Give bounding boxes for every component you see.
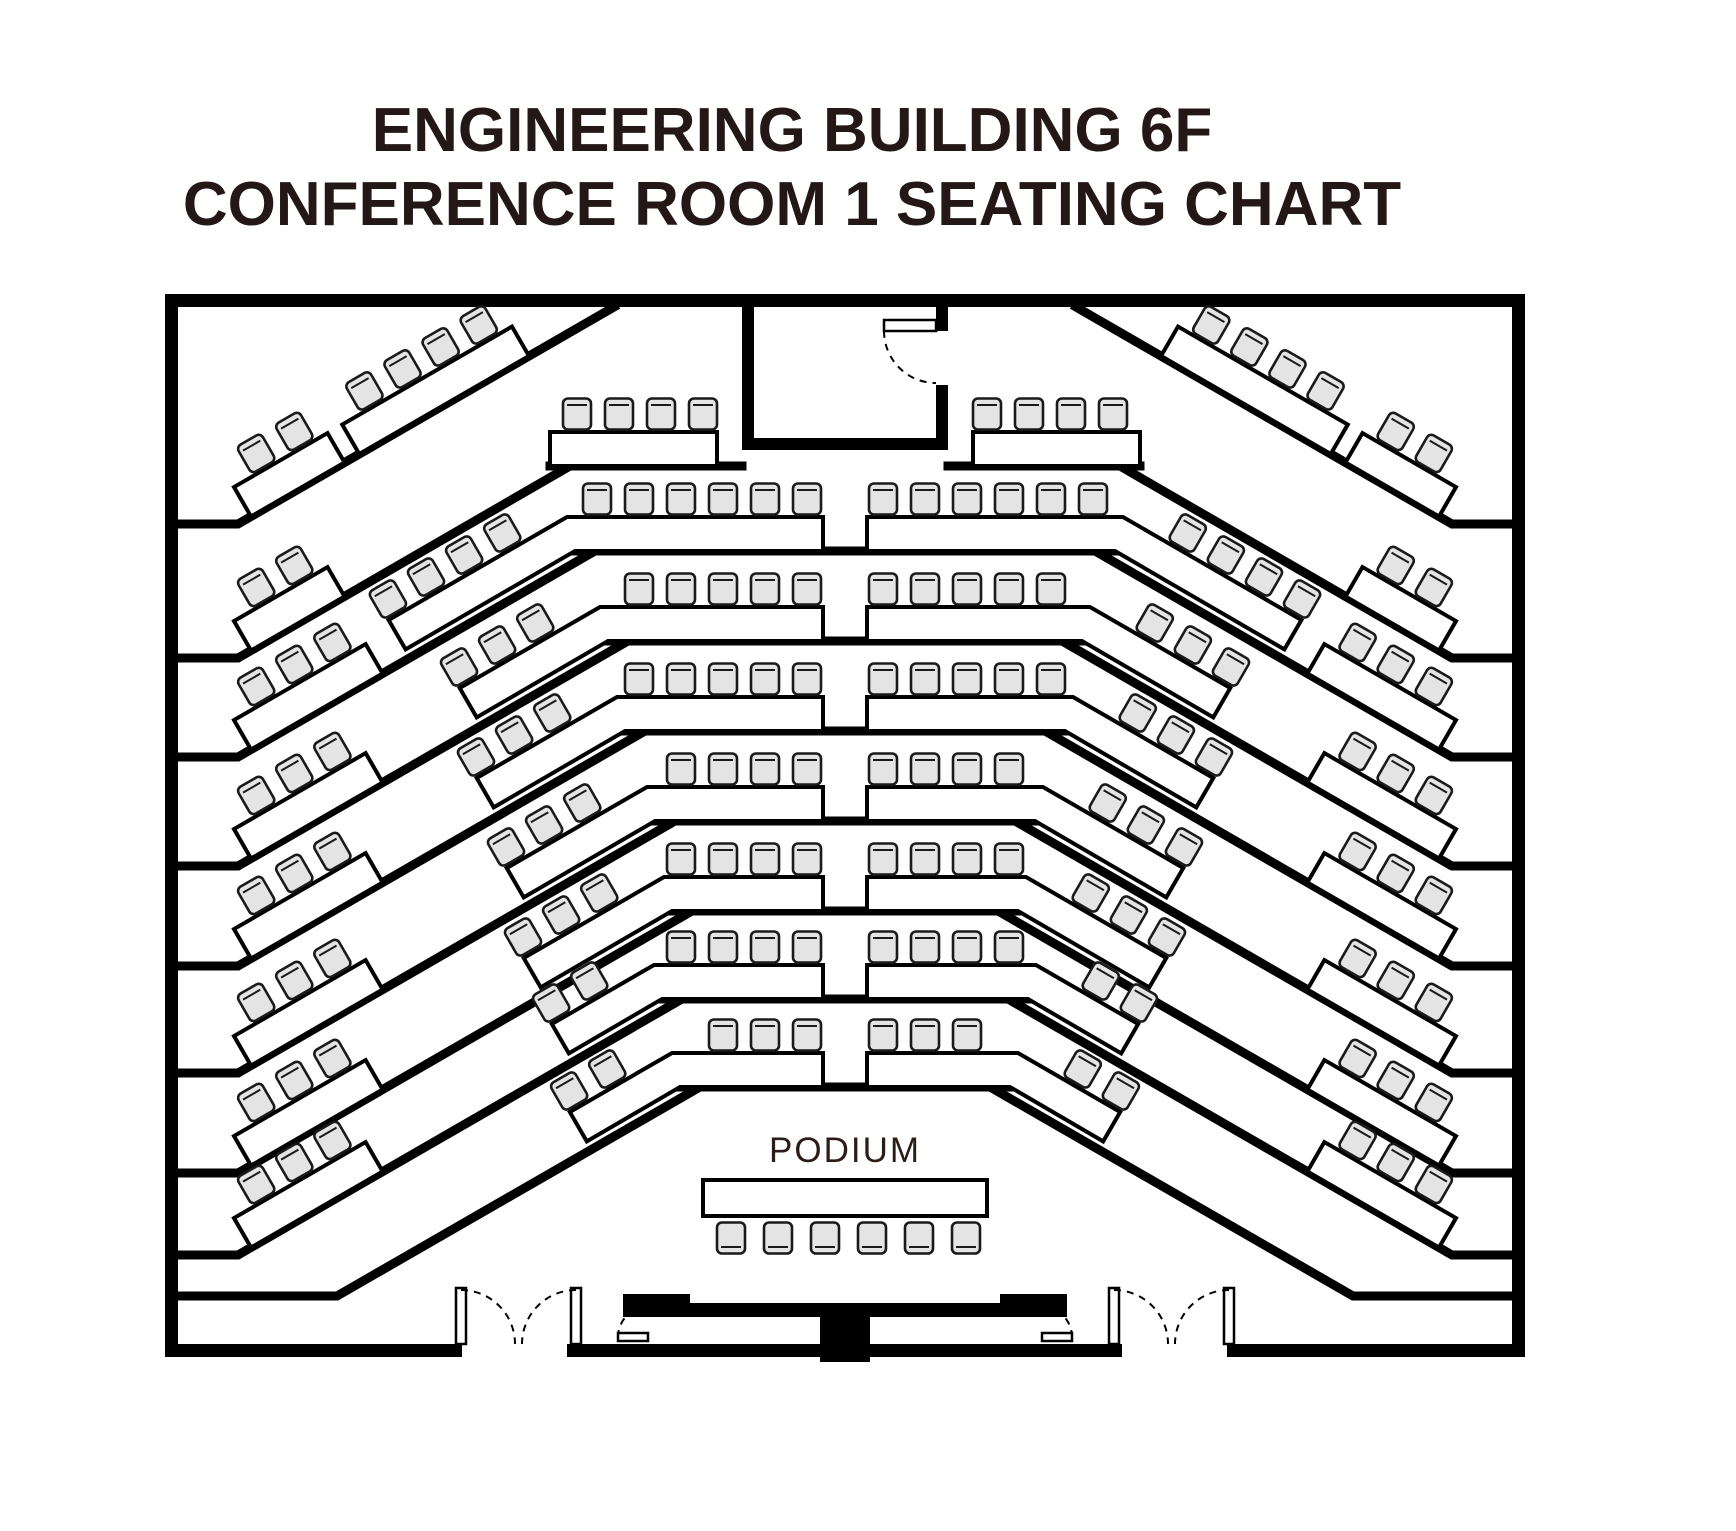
seat-body — [667, 664, 695, 695]
podium-label: PODIUM — [769, 1131, 921, 1170]
seat-body — [995, 484, 1023, 515]
seat — [793, 664, 821, 695]
seat-body — [764, 1223, 792, 1254]
seat-body — [1015, 399, 1043, 430]
service-door-leaf — [618, 1333, 648, 1341]
seat — [911, 754, 939, 785]
seat-body — [709, 1020, 737, 1051]
seat-body — [751, 932, 779, 963]
seat — [995, 574, 1023, 605]
seat-body — [709, 484, 737, 515]
seat-body — [563, 399, 591, 430]
vestibule-wall — [936, 307, 948, 331]
seat — [911, 844, 939, 875]
seat-body — [793, 754, 821, 785]
podium-seat — [811, 1223, 839, 1254]
right-half — [867, 305, 1512, 1296]
seat-body — [1079, 484, 1107, 515]
seat-body — [869, 844, 897, 875]
seat — [709, 664, 737, 695]
seat — [751, 664, 779, 695]
seat-body — [973, 399, 1001, 430]
seat-body — [995, 932, 1023, 963]
seat-body — [751, 574, 779, 605]
seat-body — [953, 754, 981, 785]
seat — [667, 664, 695, 695]
seat-body — [1037, 484, 1065, 515]
seat — [869, 1020, 897, 1051]
seat — [911, 484, 939, 515]
seat — [953, 574, 981, 605]
door-swing-arc — [884, 331, 936, 383]
seat-body — [995, 664, 1023, 695]
seat-body — [911, 574, 939, 605]
seat — [625, 664, 653, 695]
seat — [793, 484, 821, 515]
seat-body — [605, 399, 633, 430]
seat — [605, 399, 633, 430]
seat — [709, 484, 737, 515]
seat-body — [869, 484, 897, 515]
seat-body — [625, 574, 653, 605]
seat-body — [751, 844, 779, 875]
lectern — [820, 1316, 870, 1362]
seat-body — [1037, 664, 1065, 695]
seat — [953, 844, 981, 875]
seat — [583, 484, 611, 515]
seat — [751, 844, 779, 875]
wall — [1512, 294, 1525, 1357]
podium-table — [703, 1180, 987, 1216]
floor-plan-layer — [165, 294, 1525, 1362]
seat — [709, 932, 737, 963]
seat — [869, 574, 897, 605]
seat-body — [911, 664, 939, 695]
seat-body — [995, 844, 1023, 875]
seat-body — [953, 932, 981, 963]
seat-body — [1099, 399, 1127, 430]
seat — [751, 754, 779, 785]
seat-body — [811, 1223, 839, 1254]
seat-body — [793, 844, 821, 875]
seat — [667, 484, 695, 515]
seat-body — [751, 754, 779, 785]
seat-body — [667, 844, 695, 875]
seat — [995, 664, 1023, 695]
seat-body — [751, 664, 779, 695]
seat-body — [709, 932, 737, 963]
door-swing-arc — [522, 1290, 576, 1344]
seat-body — [625, 484, 653, 515]
seat-body — [905, 1223, 933, 1254]
seat — [793, 1020, 821, 1051]
seat-body — [869, 664, 897, 695]
seat-body — [709, 664, 737, 695]
seat — [869, 484, 897, 515]
podium-seat — [764, 1223, 792, 1254]
seat — [995, 484, 1023, 515]
wall — [165, 294, 1525, 307]
seat-body — [911, 932, 939, 963]
seat — [625, 484, 653, 515]
seat-body — [953, 484, 981, 515]
seat-body — [911, 484, 939, 515]
podium-seat — [717, 1223, 745, 1254]
seat-body — [995, 574, 1023, 605]
entrance-door-leaf — [571, 1288, 581, 1344]
vestibule-wall — [742, 307, 754, 450]
seat — [751, 1020, 779, 1051]
seat-body — [953, 574, 981, 605]
seat — [751, 574, 779, 605]
seat — [647, 399, 675, 430]
seat — [911, 664, 939, 695]
seat-body — [953, 664, 981, 695]
seat — [625, 574, 653, 605]
seat-body — [667, 754, 695, 785]
seat-body — [751, 484, 779, 515]
seat-body — [952, 1223, 980, 1254]
seat-body — [717, 1223, 745, 1254]
wall — [165, 294, 178, 1357]
seating-chart-page: ENGINEERING BUILDING 6F CONFERENCE ROOM … — [0, 0, 1736, 1531]
seat — [869, 844, 897, 875]
seat — [911, 932, 939, 963]
seat — [793, 574, 821, 605]
seat-body — [793, 932, 821, 963]
seat — [953, 1020, 981, 1051]
door-swing-arc — [461, 1290, 515, 1344]
seat — [995, 844, 1023, 875]
seat — [667, 932, 695, 963]
seat-body — [793, 574, 821, 605]
seat-body — [1037, 574, 1065, 605]
seat-body — [869, 574, 897, 605]
seat-body — [911, 1020, 939, 1051]
seat-body — [689, 399, 717, 430]
seat-body — [647, 399, 675, 430]
seat-body — [953, 1020, 981, 1051]
seat — [995, 932, 1023, 963]
seat — [709, 1020, 737, 1051]
left-half — [178, 305, 823, 1296]
entrance-door-leaf — [1109, 1288, 1119, 1344]
seat — [1037, 574, 1065, 605]
seat — [1037, 664, 1065, 695]
seat — [709, 754, 737, 785]
seat-body — [911, 844, 939, 875]
seat — [563, 399, 591, 430]
seat — [709, 844, 737, 875]
seat — [709, 574, 737, 605]
seat-body — [793, 664, 821, 695]
seat — [689, 399, 717, 430]
wall — [1227, 1344, 1525, 1357]
door-swing-arc — [1114, 1290, 1168, 1344]
stage-platform — [623, 1294, 1067, 1317]
center-table — [973, 432, 1140, 466]
seat — [869, 932, 897, 963]
seat-body — [793, 484, 821, 515]
seat — [751, 484, 779, 515]
vestibule-wall — [742, 438, 948, 450]
seat — [667, 754, 695, 785]
seat-body — [869, 754, 897, 785]
seat-body — [709, 754, 737, 785]
podium-seat — [905, 1223, 933, 1254]
seat — [995, 754, 1023, 785]
seat — [1099, 399, 1127, 430]
seat-body — [709, 574, 737, 605]
podium-seat — [952, 1223, 980, 1254]
seat — [793, 754, 821, 785]
center-table — [550, 432, 717, 466]
seat-body — [667, 574, 695, 605]
seat — [667, 844, 695, 875]
entrance-door-leaf — [1224, 1288, 1234, 1344]
seat — [953, 664, 981, 695]
seat — [869, 664, 897, 695]
seat-body — [583, 484, 611, 515]
seat — [911, 1020, 939, 1051]
seat-body — [667, 484, 695, 515]
seat — [953, 484, 981, 515]
seat — [1037, 484, 1065, 515]
seat — [869, 754, 897, 785]
seat — [953, 754, 981, 785]
seat — [911, 574, 939, 605]
door-swing-arc — [1175, 1290, 1229, 1344]
seat — [751, 932, 779, 963]
seat — [1079, 484, 1107, 515]
seat — [1015, 399, 1043, 430]
seat-body — [667, 932, 695, 963]
seat-body — [911, 754, 939, 785]
seat-body — [858, 1223, 886, 1254]
service-door-leaf — [1042, 1333, 1072, 1341]
seat — [793, 844, 821, 875]
seat-body — [995, 754, 1023, 785]
seat-body — [709, 844, 737, 875]
seat — [1057, 399, 1085, 430]
seat-body — [1057, 399, 1085, 430]
seat — [953, 932, 981, 963]
seat-body — [953, 844, 981, 875]
floor-plan: PODIUM — [0, 0, 1736, 1531]
vestibule-door-leaf — [884, 320, 936, 331]
wall — [165, 1344, 462, 1357]
podium-seat — [858, 1223, 886, 1254]
seat-body — [793, 1020, 821, 1051]
seat — [793, 932, 821, 963]
seat-body — [869, 932, 897, 963]
seat — [973, 399, 1001, 430]
entrance-door-leaf — [456, 1288, 466, 1344]
seat-body — [751, 1020, 779, 1051]
seat-body — [625, 664, 653, 695]
seat-body — [869, 1020, 897, 1051]
seat — [667, 574, 695, 605]
